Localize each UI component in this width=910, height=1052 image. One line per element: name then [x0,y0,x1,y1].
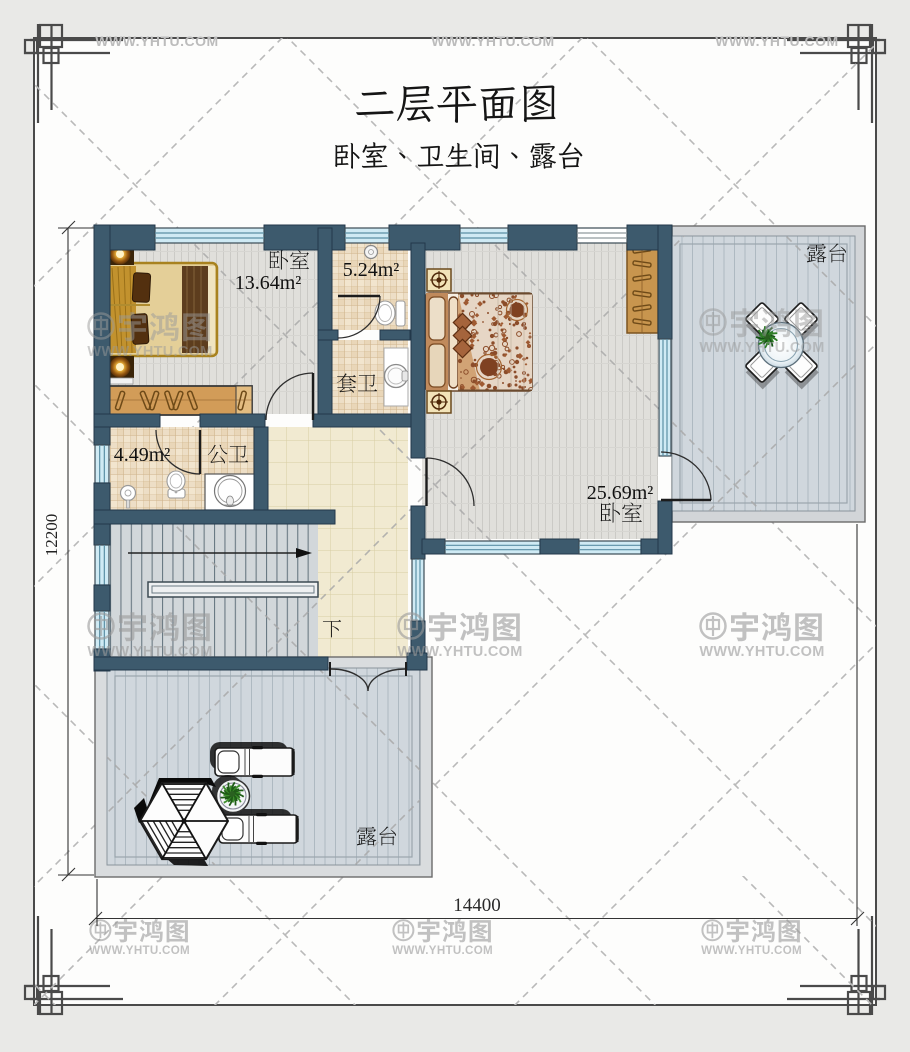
svg-text:13.64m²: 13.64m² [235,272,302,294]
svg-text:14400: 14400 [453,895,501,916]
svg-text:5.24m²: 5.24m² [343,259,400,281]
svg-text:WWW.YHTU.COM: WWW.YHTU.COM [699,340,824,356]
svg-text:25.69m²: 25.69m² [587,482,654,504]
svg-text:WWW.YHTU.COM: WWW.YHTU.COM [95,33,218,49]
svg-text:WWW.YHTU.COM: WWW.YHTU.COM [431,33,554,49]
svg-text:WWW.YHTU.COM: WWW.YHTU.COM [87,644,212,660]
svg-text:WWW.YHTU.COM: WWW.YHTU.COM [392,944,493,957]
svg-text:WWW.YHTU.COM: WWW.YHTU.COM [715,33,838,49]
svg-text:WWW.YHTU.COM: WWW.YHTU.COM [701,944,802,957]
svg-text:12200: 12200 [42,514,61,557]
svg-text:WWW.YHTU.COM: WWW.YHTU.COM [87,344,212,360]
svg-text:WWW.YHTU.COM: WWW.YHTU.COM [699,644,824,660]
svg-text:WWW.YHTU.COM: WWW.YHTU.COM [89,944,190,957]
svg-text:4.49m²: 4.49m² [114,444,171,466]
svg-text:WWW.YHTU.COM: WWW.YHTU.COM [397,644,522,660]
